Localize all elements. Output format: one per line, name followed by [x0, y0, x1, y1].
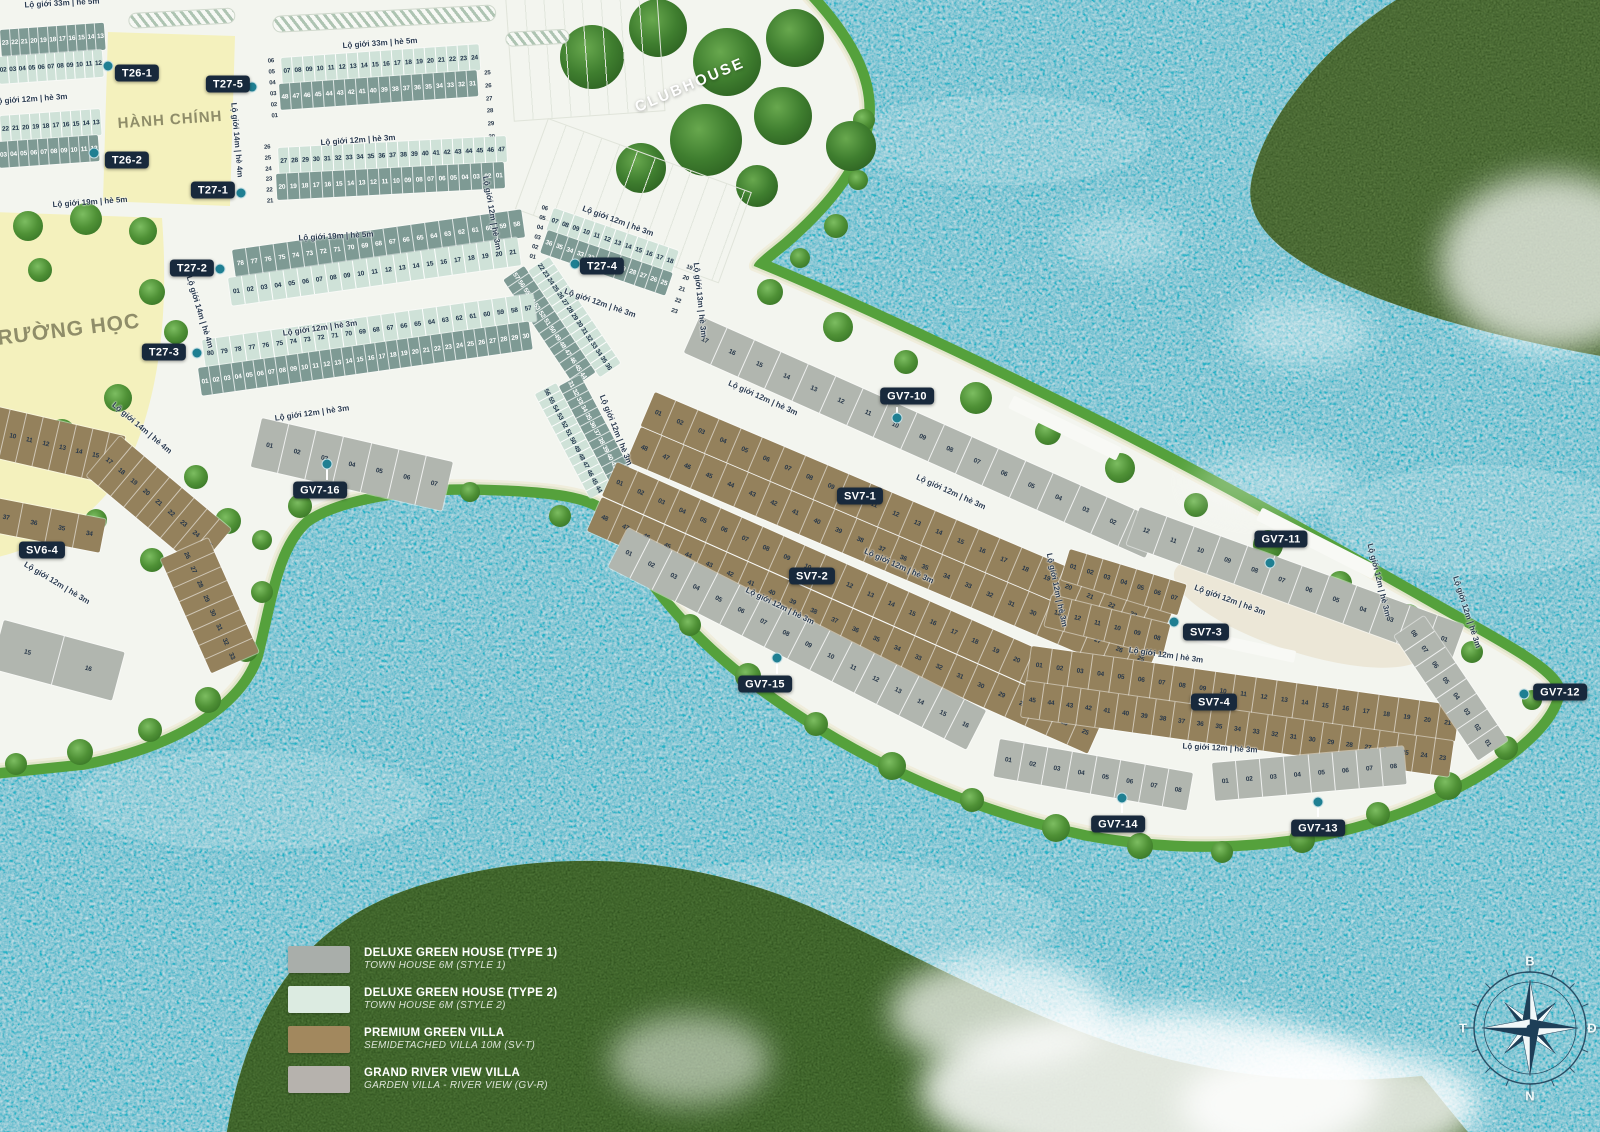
badge-anchor-dot: [892, 413, 903, 424]
compass-west-label: T: [1459, 1021, 1467, 1036]
zone-badge-sv7-1: SV7-1: [837, 488, 883, 505]
legend-subtitle: TOWN HOUSE 6M (STYLE 2): [364, 1000, 557, 1011]
legend-title: DELUXE GREEN HOUSE (TYPE 2): [364, 986, 557, 1000]
zone-badge-t27-5: T27-5: [206, 76, 250, 93]
zone-badge-t27-4: T27-4: [580, 258, 624, 275]
zone-badge-t26-2: T26-2: [105, 152, 149, 169]
legend-swatch: [288, 946, 350, 973]
legend-swatch: [288, 1026, 350, 1053]
badge-anchor-dot: [1313, 797, 1324, 808]
legend-title: DELUXE GREEN HOUSE (TYPE 1): [364, 946, 557, 960]
legend-subtitle: SEMIDETACHED VILLA 10M (SV-T): [364, 1040, 535, 1051]
zone-badge-t27-3: T27-3: [142, 344, 186, 361]
badge-anchor-dot: [570, 259, 581, 270]
legend-item: DELUXE GREEN HOUSE (TYPE 1)TOWN HOUSE 6M…: [288, 946, 557, 973]
badge-anchor-dot: [1117, 793, 1128, 804]
compass-rose: [1448, 946, 1600, 1110]
master-plan-map: 2322212019181716151413020304050607080910…: [0, 0, 1600, 1132]
badge-anchor-dot: [322, 459, 333, 470]
zone-badge-gv7-11: GV7-11: [1254, 531, 1307, 548]
legend-item: GRAND RIVER VIEW VILLAGARDEN VILLA - RIV…: [288, 1066, 557, 1093]
legend-swatch: [288, 986, 350, 1013]
compass-north-label: B: [1525, 954, 1534, 969]
zone-badge-t27-2: T27-2: [170, 260, 214, 277]
legend-swatch: [288, 1066, 350, 1093]
zone-badge-gv7-15: GV7-15: [738, 676, 792, 693]
badge-anchor-dot: [192, 348, 203, 359]
zone-badge-sv6-4: SV6-4: [19, 542, 65, 559]
legend-title: PREMIUM GREEN VILLA: [364, 1026, 535, 1040]
compass-south-label: N: [1525, 1089, 1534, 1104]
legend: DELUXE GREEN HOUSE (TYPE 1)TOWN HOUSE 6M…: [288, 946, 557, 1106]
badge-anchor-dot: [89, 148, 100, 159]
legend-subtitle: GARDEN VILLA - RIVER VIEW (GV-R): [364, 1080, 548, 1091]
zone-badge-gv7-14: GV7-14: [1091, 816, 1145, 833]
badge-anchor-dot: [236, 188, 247, 199]
legend-title: GRAND RIVER VIEW VILLA: [364, 1066, 548, 1080]
zone-badge-gv7-10: GV7-10: [880, 388, 934, 405]
compass-east-label: Đ: [1587, 1021, 1596, 1036]
zone-badge-gv7-12: GV7-12: [1533, 684, 1587, 701]
badge-anchor-dot: [1169, 617, 1180, 628]
badge-anchor-dot: [103, 61, 114, 72]
zone-badge-gv7-16: GV7-16: [293, 482, 347, 499]
badge-anchor-dot: [1265, 558, 1276, 569]
zone-badge-sv7-2: SV7-2: [789, 568, 835, 585]
zone-badge-gv7-13: GV7-13: [1291, 820, 1345, 837]
zone-badge-t26-1: T26-1: [115, 65, 159, 82]
zone-badge-sv7-3: SV7-3: [1183, 624, 1229, 641]
zone-badge-sv7-4: SV7-4: [1191, 694, 1237, 711]
legend-item: PREMIUM GREEN VILLASEMIDETACHED VILLA 10…: [288, 1026, 557, 1053]
badge-anchor-dot: [215, 264, 226, 275]
legend-subtitle: TOWN HOUSE 6M (STYLE 1): [364, 960, 557, 971]
badge-anchor-dot: [772, 653, 783, 664]
badge-anchor-dot: [1519, 689, 1530, 700]
legend-item: DELUXE GREEN HOUSE (TYPE 2)TOWN HOUSE 6M…: [288, 986, 557, 1013]
zone-badge-t27-1: T27-1: [191, 182, 235, 199]
zone-badges: T26-1T26-2T27-5T27-1T27-2T27-3T27-4SV6-4…: [0, 0, 1600, 1132]
